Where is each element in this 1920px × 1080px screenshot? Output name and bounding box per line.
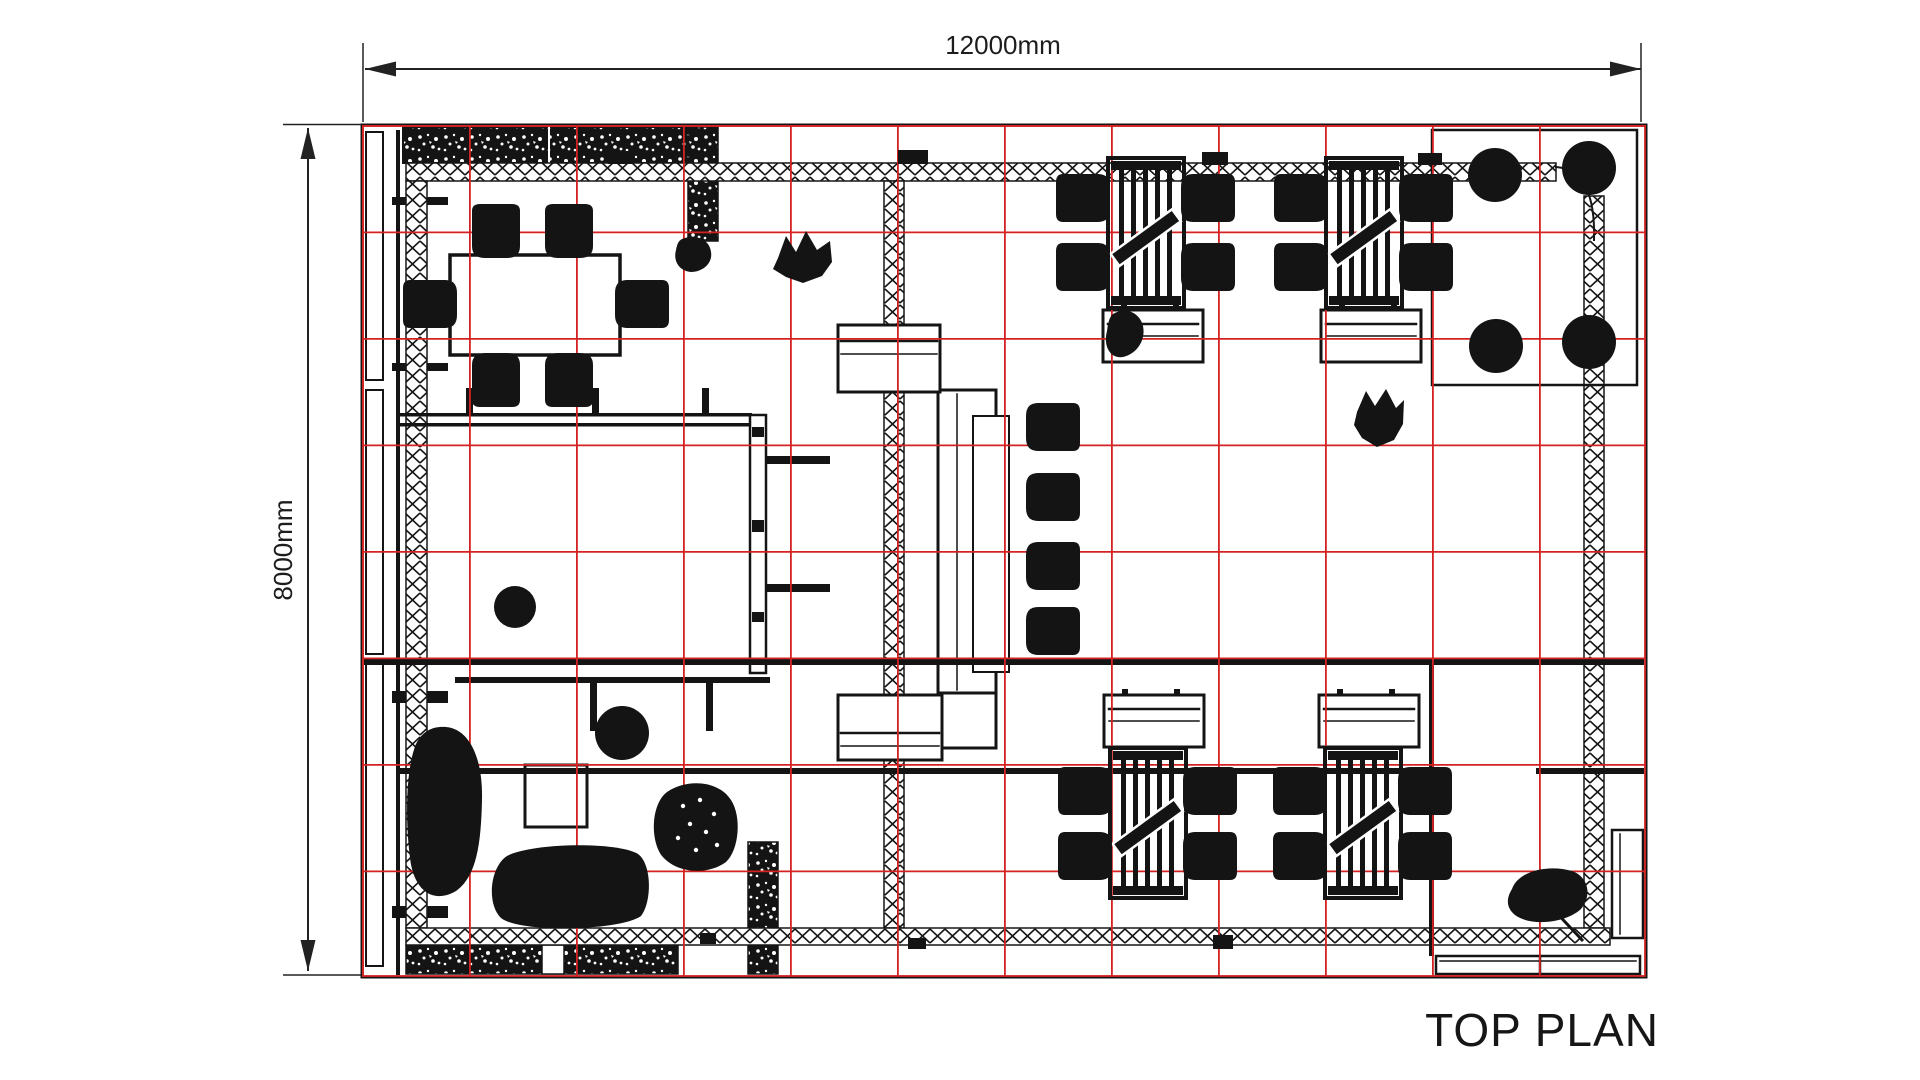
chair — [1181, 174, 1235, 222]
spotlight — [1213, 935, 1233, 949]
spotlight — [608, 151, 634, 164]
chair — [1399, 174, 1453, 222]
stool — [1026, 607, 1080, 655]
plan-title: TOP PLAN — [1425, 1004, 1659, 1056]
chair — [1056, 243, 1110, 291]
floor-plan-page: 12000mm 8000mm TOP PLAN — [0, 0, 1920, 1080]
stool — [1026, 473, 1080, 521]
chair — [1399, 243, 1453, 291]
chair — [1398, 832, 1452, 880]
spotlight — [908, 938, 926, 949]
chair — [472, 204, 520, 258]
chair — [1398, 767, 1452, 815]
chair — [1274, 174, 1328, 222]
chair — [1058, 832, 1112, 880]
floor-plan-canvas: 12000mm 8000mm TOP PLAN — [0, 0, 1920, 1080]
chair — [545, 353, 593, 407]
sofa-wide — [492, 845, 649, 928]
width-dimension-label: 12000mm — [945, 30, 1061, 60]
pouf — [1562, 141, 1616, 195]
arrow-right-icon — [1610, 62, 1641, 77]
sofa-large — [407, 727, 482, 896]
chair — [1181, 243, 1235, 291]
chair — [545, 204, 593, 258]
spotlight — [1418, 153, 1442, 165]
chair — [403, 280, 457, 328]
dimension-top: 12000mm — [363, 30, 1641, 122]
pouf — [1469, 319, 1523, 373]
chair — [1273, 832, 1327, 880]
chair — [1273, 767, 1327, 815]
chair — [1183, 832, 1237, 880]
chair — [1274, 243, 1328, 291]
arrow-up-icon — [301, 128, 316, 159]
arrow-left-icon — [365, 62, 396, 77]
pouf — [1468, 148, 1522, 202]
height-dimension-label: 8000mm — [268, 499, 298, 600]
dimension-left: 8000mm — [268, 125, 361, 976]
stool — [1026, 403, 1080, 451]
arrow-down-icon — [301, 940, 316, 971]
chair — [1058, 767, 1112, 815]
chair — [615, 280, 669, 328]
chair — [1056, 174, 1110, 222]
pouf — [1562, 315, 1616, 369]
pouf — [494, 586, 536, 628]
chair — [472, 353, 520, 407]
spotlight — [700, 933, 716, 944]
armchair-dotted — [654, 783, 738, 871]
spotlight — [1202, 152, 1228, 165]
stool — [1026, 542, 1080, 590]
chair — [1183, 767, 1237, 815]
pouf — [595, 706, 649, 760]
spotlight — [898, 150, 928, 164]
